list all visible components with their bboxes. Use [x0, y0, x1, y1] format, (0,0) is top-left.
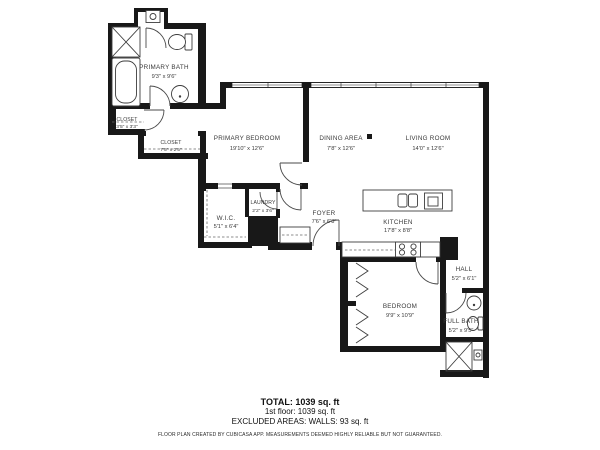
water-heater-icon	[146, 11, 160, 23]
room-dims-primary-bedroom: 19'10" x 12'6"	[230, 146, 264, 152]
room-label-kitchen: KITCHEN	[383, 219, 413, 226]
room-dims-full-bath: 5'2" x 9'5"	[449, 328, 474, 334]
room-dims-bedroom: 9'9" x 10'9"	[386, 313, 414, 319]
room-label-closet-small: CLOSET	[117, 117, 138, 123]
room-dims-living-room: 14'0" x 12'6"	[412, 146, 443, 152]
room-label-wic: W.I.C.	[217, 215, 236, 222]
shaft-cross	[446, 342, 482, 371]
window-band	[232, 83, 479, 88]
room-label-bedroom: BEDROOM	[383, 303, 417, 310]
bathtub-icon	[112, 58, 140, 106]
door-arc	[416, 262, 438, 284]
room-label-closet-long: CLOSET	[161, 140, 182, 146]
door-arc	[144, 110, 164, 130]
room-dims-laundry: 2'2" x 3'6"	[252, 208, 274, 214]
excluded-areas-text: EXCLUDED AREAS: WALLS: 93 sq. ft	[0, 417, 600, 427]
room-dims-hall: 5'2" x 6'1"	[452, 276, 477, 282]
toilet-icon	[169, 34, 193, 50]
sink-icon	[172, 86, 189, 103]
door-arc	[280, 189, 301, 210]
room-label-laundry: LAUNDRY	[251, 200, 276, 206]
summary-block: TOTAL: 1039 sq. ft 1st floor: 1039 sq. f…	[0, 397, 600, 438]
room-dims-foyer: 7'6" x 6'8"	[312, 219, 337, 225]
floor-plan-drawing: PRIMARY BATH 9'3" x 9'6" CLOSET 3'5" x 3…	[0, 0, 600, 450]
shower-icon	[112, 27, 140, 57]
folding-door-chevrons	[356, 263, 368, 343]
room-dims-dining-area: 7'8" x 12'6"	[327, 146, 355, 152]
total-area-text: TOTAL: 1039 sq. ft	[0, 397, 600, 407]
room-dims-kitchen: 17'8" x 8'8"	[384, 228, 412, 234]
door-arc	[146, 28, 166, 48]
full-bath-sink-icon	[467, 296, 481, 310]
first-floor-area-text: 1st floor: 1039 sq. ft	[0, 407, 600, 417]
room-dims-primary-bath: 9'3" x 9'6"	[152, 74, 177, 80]
room-label-primary-bedroom: PRIMARY BEDROOM	[214, 135, 281, 142]
room-label-living-room: LIVING ROOM	[406, 135, 451, 142]
room-dims-closet-small: 3'5" x 3'3"	[116, 124, 138, 130]
floor-plan-page: PRIMARY BATH 9'3" x 9'6" CLOSET 3'5" x 3…	[0, 0, 600, 450]
disclaimer-text: FLOOR PLAN CREATED BY CUBICASA APP. MEAS…	[0, 432, 600, 438]
door-arc	[446, 293, 466, 313]
room-dims-wic: 5'1" x 6'4"	[214, 224, 239, 230]
room-label-foyer: FOYER	[313, 210, 336, 217]
room-label-dining-area: DINING AREA	[319, 135, 363, 142]
foyer-cabinet	[280, 227, 310, 243]
room-label-hall: HALL	[456, 266, 473, 273]
room-label-primary-bath: PRIMARY BATH	[139, 64, 189, 71]
room-dims-closet-long: 7'5" x 2'5"	[160, 147, 182, 153]
doorway	[218, 184, 232, 188]
door-arc	[280, 163, 302, 185]
doors	[144, 28, 466, 313]
door-arc	[150, 86, 170, 106]
kitchen-counter	[342, 242, 440, 257]
room-label-full-bath: FULL BATH	[443, 318, 479, 325]
kitchen-island	[363, 190, 452, 211]
